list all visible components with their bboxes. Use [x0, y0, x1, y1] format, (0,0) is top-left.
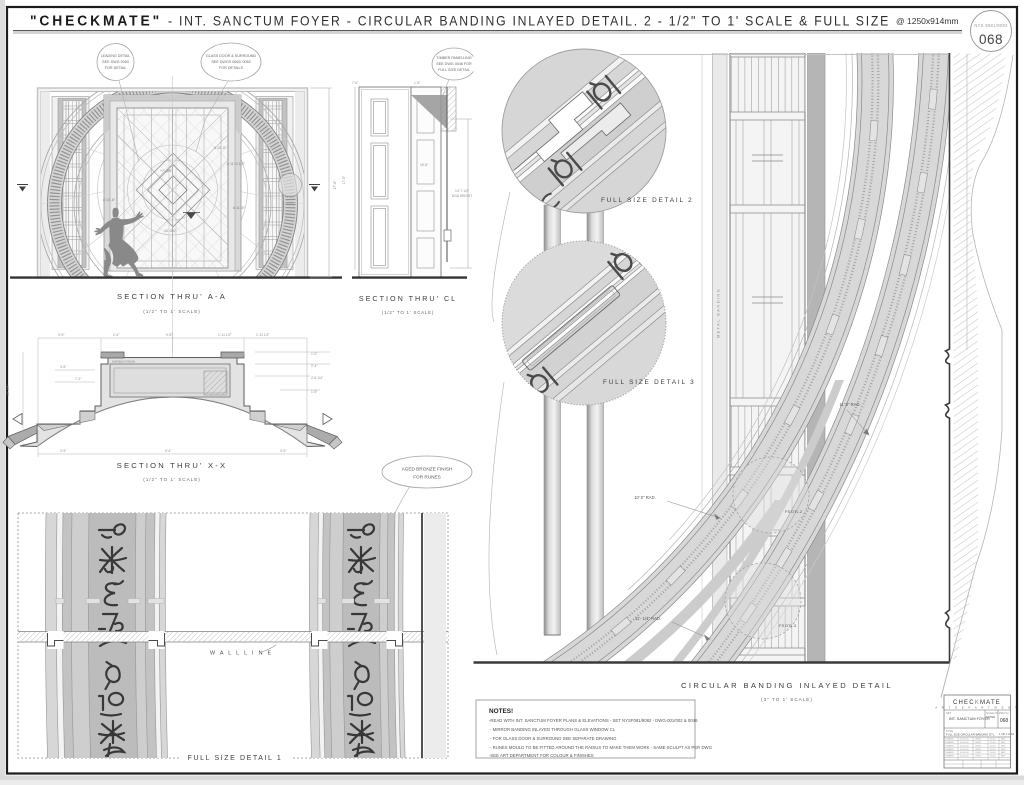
svg-text:16'-8": 16'-8" — [420, 163, 429, 167]
svg-text:(1/2" TO 1' SCALE): (1/2" TO 1' SCALE) — [143, 309, 201, 314]
svg-text:(1/2" TO 1' SCALE): (1/2" TO 1' SCALE) — [382, 310, 434, 315]
svg-text:+7'-3/4": +7'-3/4" — [160, 169, 173, 173]
svg-text:-SEE ART DEPARTMENT FOR COLOUR: -SEE ART DEPARTMENT FOR COLOUR & FINISHE… — [489, 753, 594, 758]
svg-text:17'-6": 17'-6" — [333, 180, 337, 190]
svg-text:# 10'-0": # 10'-0" — [214, 146, 227, 150]
svg-text:FULL SIZE CIRCULAR BANDING DTL: FULL SIZE CIRCULAR BANDING DTL — [946, 733, 995, 737]
svg-text:00.00.00: 00.00.00 — [960, 756, 969, 758]
svg-text:INT. SANCTUM FOYER: INT. SANCTUM FOYER — [949, 717, 990, 721]
svg-text:- MIRROR BANDING INLAYED THROU: - MIRROR BANDING INLAYED THROUGH GLASS W… — [490, 727, 616, 732]
svg-text:LEADING DETAIL: LEADING DETAIL — [101, 54, 131, 58]
svg-text:00.00: 00.00 — [990, 739, 996, 741]
svg-text:# 11'-8": # 11'-8" — [233, 206, 246, 210]
svg-text:00.00.00: 00.00.00 — [960, 742, 969, 744]
svg-text:068: 068 — [1000, 718, 1009, 724]
svg-text:1'-11 1/2": 1'-11 1/2" — [218, 333, 232, 337]
svg-text:DRAWN: DRAWN — [946, 755, 955, 758]
svg-text:00.00.00: 00.00.00 — [960, 752, 969, 754]
svg-text:00.00: 00.00 — [990, 752, 996, 754]
svg-text:- INT. SANCTUM FOYER - C: - INT. SANCTUM FOYER - CIRCULAR BANDING … — [168, 13, 890, 29]
svg-text:FS DTL.2: FS DTL.2 — [785, 509, 803, 514]
svg-text:00.00: 00.00 — [990, 749, 996, 751]
svg-text:2'-4": 2'-4" — [311, 364, 318, 368]
svg-text:14'-3/4": 14'-3/4" — [6, 384, 10, 396]
svg-text:(3" TO 1' SCALE): (3" TO 1' SCALE) — [761, 697, 813, 702]
svg-text:AGED BRONZE FINISH: AGED BRONZE FINISH — [402, 467, 453, 472]
svg-text:1'-5": 1'-5" — [311, 390, 318, 394]
svg-text:FS3: FS3 — [287, 195, 293, 199]
svg-text:3'-9": 3'-9" — [58, 333, 65, 337]
svg-text:# 10'-6": # 10'-6" — [103, 198, 116, 202]
svg-text:SET: SET — [946, 711, 951, 715]
svg-text:2'-4": 2'-4" — [113, 333, 120, 337]
svg-text:GLASS DOOR & SURROUND: GLASS DOOR & SURROUND — [206, 54, 257, 58]
svg-text:1'-8": 1'-8" — [414, 81, 421, 85]
svg-text:17'-6": 17'-6" — [342, 175, 346, 184]
svg-text:CHKD: CHKD — [975, 739, 982, 741]
svg-text:DWG No.: DWG No. — [999, 712, 1010, 715]
svg-text:METAL BANDING: METAL BANDING — [716, 288, 721, 338]
svg-text:TIMBER PANELLING: TIMBER PANELLING — [436, 56, 472, 60]
svg-text:FOR DETAIL: FOR DETAIL — [105, 66, 126, 70]
svg-text:10'-3/4": 10'-3/4" — [164, 229, 177, 233]
svg-text:CHKD: CHKD — [975, 745, 982, 747]
svg-text:NOTED: NOTED — [986, 715, 995, 719]
svg-text:11'- 1/4" RAD.: 11'- 1/4" RAD. — [635, 616, 661, 621]
svg-text:7'-6": 7'-6" — [352, 81, 359, 85]
svg-text:11' 8" RAD.: 11' 8" RAD. — [839, 402, 860, 407]
svg-text:@ 1250x914mm: @ 1250x914mm — [896, 16, 959, 26]
svg-text:"CHECKMATE": "CHECKMATE" — [30, 14, 162, 30]
svg-text:FULL SIZE DETAIL: FULL SIZE DETAIL — [438, 68, 470, 72]
svg-text:SEE DWGS 0062/ 0063: SEE DWGS 0062/ 0063 — [211, 60, 250, 64]
svg-text:CHKD: CHKD — [975, 742, 982, 744]
svg-text:- FOR GLASS DOOR & SURROUND S: - FOR GLASS DOOR & SURROUND SEE SEPARATE… — [490, 736, 617, 741]
svg-text:FULL SIZE DETAIL 1: FULL SIZE DETAIL 1 — [188, 755, 283, 762]
svg-text:FULL SIZE DETAIL 2: FULL SIZE DETAIL 2 — [601, 197, 694, 204]
svg-text:9'-8": 9'-8" — [166, 333, 173, 337]
svg-text:1 OF 1 A-01: 1 OF 1 A-01 — [999, 732, 1015, 736]
svg-text:# 11'-0 1/4": # 11'-0 1/4" — [227, 162, 246, 166]
svg-text:SECTION THRU' CL: SECTION THRU' CL — [359, 294, 457, 303]
svg-text:SEE DWG 0063: SEE DWG 0063 — [102, 60, 129, 64]
svg-text:DRAWN: DRAWN — [946, 748, 955, 751]
svg-text:(1/2" TO 1' SCALE): (1/2" TO 1' SCALE) — [143, 477, 201, 482]
svg-text:00.00: 00.00 — [990, 745, 996, 747]
svg-text:3'-6": 3'-6" — [60, 365, 67, 369]
svg-text:REV: REV — [1001, 752, 1006, 754]
svg-text:3'-9": 3'-9" — [60, 449, 67, 453]
svg-text:CHKD: CHKD — [975, 752, 982, 754]
svg-text:CHKD: CHKD — [975, 756, 982, 758]
svg-text:-READ WITH INT. SANCTUM FOYER: -READ WITH INT. SANCTUM FOYER PLANS & EL… — [489, 718, 698, 723]
svg-text:DRAWN: DRAWN — [946, 744, 955, 747]
svg-text:00.00.00: 00.00.00 — [960, 749, 969, 751]
svg-text:SCALE AS: SCALE AS — [986, 712, 998, 715]
svg-text:1'-0": 1'-0" — [311, 352, 318, 356]
svg-text:14'-7 1/2": 14'-7 1/2" — [455, 189, 470, 193]
svg-text:FULL SIZE DETAIL 3: FULL SIZE DETAIL 3 — [603, 379, 696, 386]
svg-text:SECTION THRU' A-A: SECTION THRU' A-A — [117, 292, 227, 301]
svg-text:REV: REV — [1001, 749, 1006, 751]
svg-text:FOR RUNES: FOR RUNES — [413, 475, 441, 480]
svg-text:CIRCULAR BANDING INLAYED DETAI: CIRCULAR BANDING INLAYED DETAIL — [681, 681, 893, 690]
svg-text:DGA HEIGHT: DGA HEIGHT — [452, 194, 472, 198]
svg-text:7'-2": 7'-2" — [75, 377, 82, 381]
svg-text:00.00: 00.00 — [990, 742, 996, 744]
svg-text:- RUNES MOULD TO BE FITTED ARO: - RUNES MOULD TO BE FITTED AROUND THE RA… — [490, 745, 713, 750]
svg-text:6'-4": 6'-4" — [165, 449, 172, 453]
svg-text:REV: REV — [1001, 739, 1006, 741]
svg-text:NOTES!: NOTES! — [489, 708, 513, 715]
svg-text:00.00: 00.00 — [990, 756, 996, 758]
svg-text:00.00.00: 00.00.00 — [960, 745, 969, 747]
svg-text:FOR DETAILS: FOR DETAILS — [219, 66, 243, 70]
svg-text:3'-9": 3'-9" — [280, 449, 287, 453]
svg-text:1'-11 1/2": 1'-11 1/2" — [256, 333, 270, 337]
svg-text:NYS 9081/9082: NYS 9081/9082 — [974, 23, 1008, 28]
svg-text:DRAWN: DRAWN — [946, 738, 955, 741]
svg-text:SEE DWG 0046 FOR: SEE DWG 0046 FOR — [436, 62, 472, 66]
svg-text:FS DTL.3: FS DTL.3 — [779, 623, 797, 628]
svg-text:REV: REV — [1001, 742, 1006, 744]
svg-text:068: 068 — [979, 32, 1003, 47]
svg-text:MARBLE FINISH: MARBLE FINISH — [112, 360, 135, 364]
svg-text:SECTION THRU' X-X: SECTION THRU' X-X — [117, 461, 227, 470]
svg-text:10' 0" RAD.: 10' 0" RAD. — [634, 495, 656, 500]
svg-text:2'-6 1/4": 2'-6 1/4" — [311, 376, 324, 380]
svg-text:DRAWN: DRAWN — [946, 751, 955, 754]
svg-text:00.00.00: 00.00.00 — [960, 739, 969, 741]
svg-text:A R T D E P A R T M E N T: A R T D E P A R T M E N T — [935, 706, 1018, 710]
svg-text:REV: REV — [1001, 756, 1006, 758]
svg-text:CHKD: CHKD — [975, 749, 982, 751]
svg-text:DRAWN: DRAWN — [946, 741, 955, 744]
svg-text:REV: REV — [1001, 745, 1006, 747]
